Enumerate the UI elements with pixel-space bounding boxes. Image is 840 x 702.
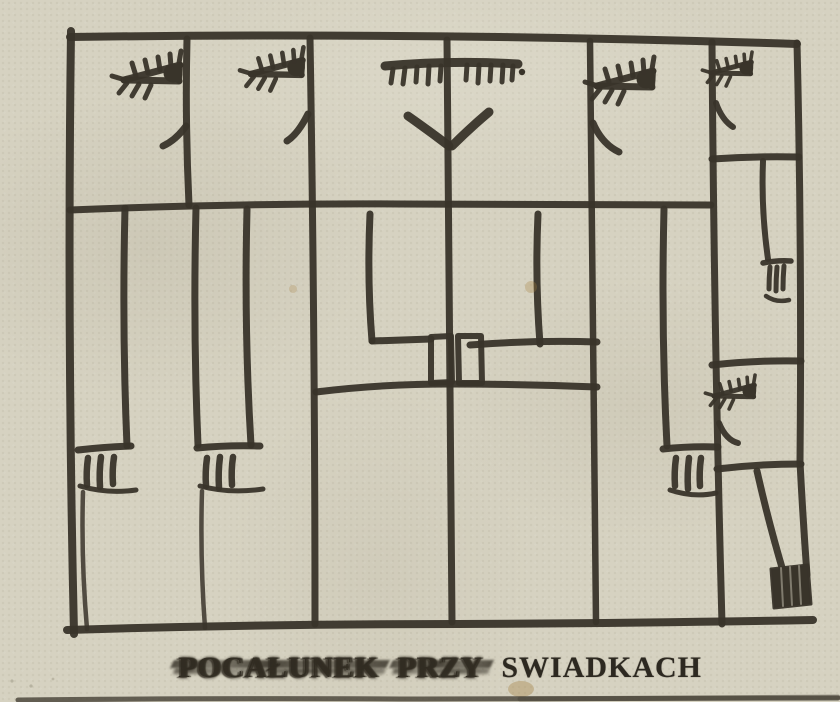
witness-1-figure xyxy=(78,51,186,629)
hand-base-stroke xyxy=(766,296,789,301)
foot-toes-icon xyxy=(663,447,718,495)
frame-bottom-line xyxy=(67,620,813,630)
arm-line xyxy=(369,214,372,341)
lip-stroke xyxy=(452,112,489,146)
lower-leg-line xyxy=(83,492,88,629)
kissing-couple-figure xyxy=(316,62,597,392)
finger-stroke xyxy=(769,267,770,289)
toe-stroke xyxy=(219,457,220,488)
ink-dot xyxy=(519,69,525,75)
eye-icon xyxy=(240,47,305,90)
cartoon-illustration xyxy=(0,0,840,702)
cuff-bar xyxy=(763,261,791,263)
lower-leg-line xyxy=(201,491,205,628)
arm-line xyxy=(537,214,540,344)
arm-line xyxy=(763,161,768,259)
foot-bar xyxy=(197,446,260,448)
stain xyxy=(525,281,537,293)
leg-line xyxy=(124,208,127,446)
mouth-stroke xyxy=(163,126,186,146)
closed-eyes-bar xyxy=(385,62,518,66)
shoulder-line xyxy=(70,204,711,210)
ground-stroke xyxy=(80,486,136,491)
head-top-line xyxy=(712,361,801,365)
frame-top-line xyxy=(70,36,797,44)
toe-stroke xyxy=(700,458,701,486)
divider-line-2 xyxy=(310,38,315,624)
foot-toes-icon xyxy=(78,446,136,491)
leg-line xyxy=(757,471,783,571)
frame-right-line xyxy=(797,43,807,575)
toe-stroke xyxy=(113,457,114,484)
mouth-stroke xyxy=(287,114,308,141)
witness-3-figure xyxy=(585,57,718,495)
eye-icon xyxy=(112,51,183,98)
leg-line xyxy=(195,208,198,445)
caption: POCAŁUNEK PRZY SWIADKACH xyxy=(70,651,810,685)
center-divider-line xyxy=(447,40,452,622)
mouth-stroke xyxy=(716,103,733,127)
speck xyxy=(10,679,13,682)
panel-lines xyxy=(70,38,722,624)
scanned-page: POCAŁUNEK PRZY SWIADKACH xyxy=(0,0,840,702)
toe-stroke xyxy=(232,457,233,485)
finger-stroke xyxy=(783,266,784,289)
caption-word: SWIADKACH xyxy=(501,651,702,685)
toe-stroke xyxy=(675,458,676,486)
foot-bar xyxy=(663,447,718,449)
frame-left-line xyxy=(70,31,74,634)
cutoff-print-line xyxy=(520,697,838,699)
toe-stroke xyxy=(87,458,88,485)
boot-icon xyxy=(771,565,811,608)
mouth-stroke xyxy=(719,423,738,443)
leg-line xyxy=(663,209,667,446)
arm-line xyxy=(372,339,431,341)
toe-stroke xyxy=(206,458,207,486)
speck xyxy=(29,684,32,687)
divider-line-1 xyxy=(186,39,189,205)
leg-line xyxy=(246,209,251,445)
hand-fingers-icon xyxy=(763,261,791,301)
foot-bar xyxy=(78,446,131,450)
ground-stroke xyxy=(670,490,716,495)
stain xyxy=(289,285,297,293)
lip-stroke xyxy=(408,116,449,146)
head-bottom-line xyxy=(712,157,799,159)
toe-stroke xyxy=(688,458,689,489)
eye-icon xyxy=(585,57,656,104)
hip-line xyxy=(316,384,597,392)
speck xyxy=(52,678,55,681)
finger-stroke xyxy=(776,267,777,291)
arm-line xyxy=(470,341,597,345)
caption-word: POCAŁUNEK xyxy=(178,651,379,685)
divider-line-4 xyxy=(712,42,722,624)
mouth-stroke xyxy=(593,123,619,152)
witness-2-figure xyxy=(195,47,308,628)
drawing-frame xyxy=(67,31,813,634)
foot-toes-icon xyxy=(197,446,263,491)
toe-stroke xyxy=(100,457,101,487)
closed-eyes-icon xyxy=(385,62,525,84)
caption-word: PRZY xyxy=(397,651,483,685)
